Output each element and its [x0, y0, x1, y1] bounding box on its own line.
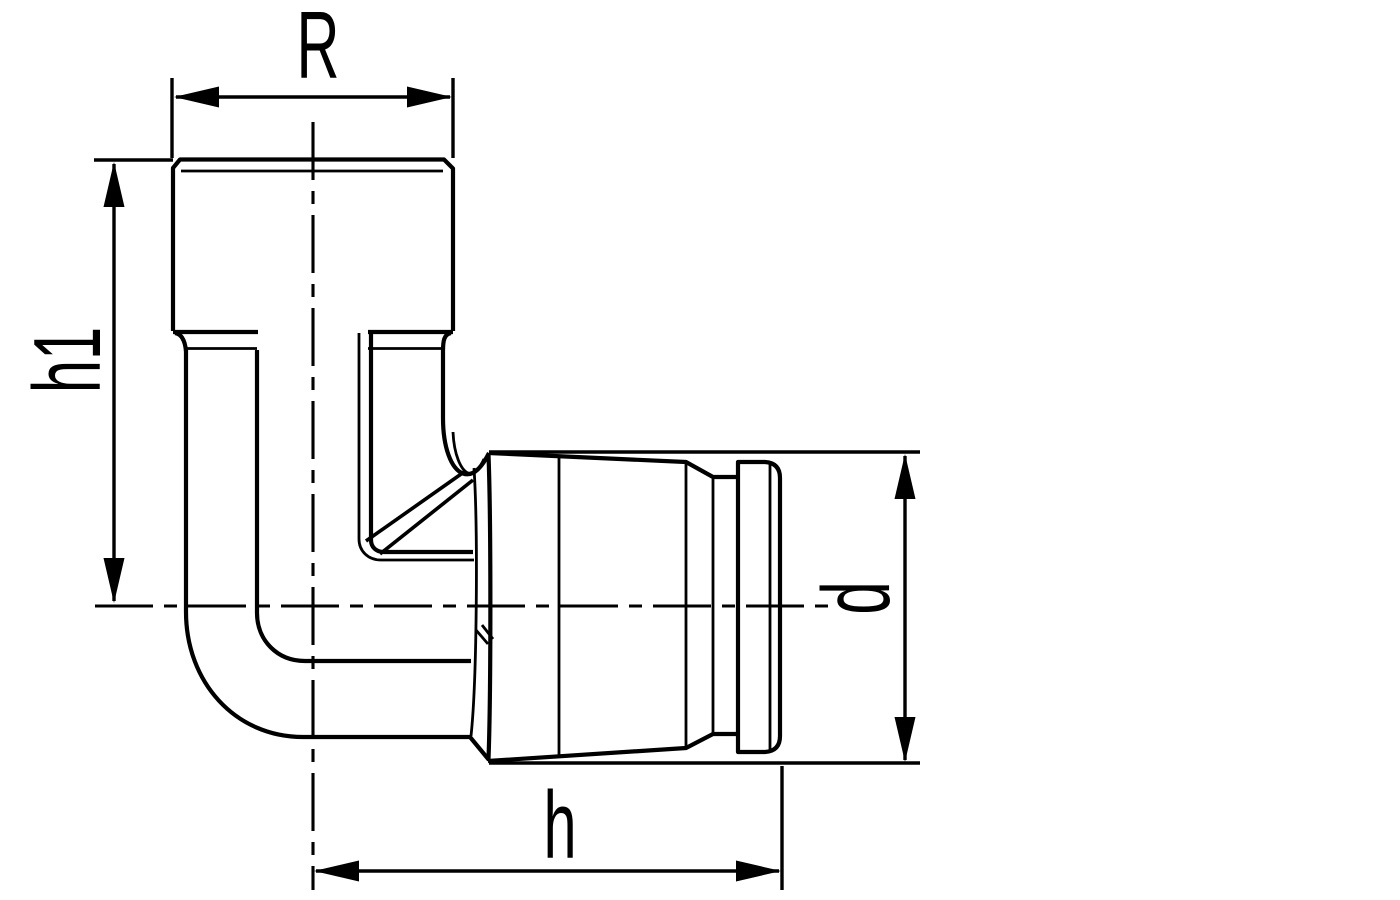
dimension-R-arrow-left: [174, 87, 219, 108]
elbow-fitting-technical-drawing: R h1 d h: [0, 0, 1400, 900]
dimension-label-h: h: [543, 771, 576, 878]
cone-transition-line-2: [380, 480, 473, 554]
dimension-d-arrow-top: [895, 454, 916, 499]
cup-mouth-face-edge: [489, 455, 491, 759]
fitting-body-outline: [173, 160, 780, 762]
dimension-h1-arrow-top: [104, 162, 125, 207]
tube-right-saddle: [443, 351, 489, 474]
dimension-h: h: [314, 766, 782, 890]
cone-transition-line-1: [366, 472, 464, 541]
dimension-R-arrow-right: [407, 87, 452, 108]
centerlines: [95, 122, 835, 890]
cup-bottom-edge: [488, 734, 738, 761]
socket-left-corner-fillet: [175, 333, 186, 351]
dimension-h-arrow-left: [314, 861, 359, 882]
dimension-label-R: R: [297, 0, 340, 98]
saddle-inner-curve: [453, 432, 484, 473]
fitting-detail-lines: [181, 171, 770, 757]
dimension-d-arrow-bottom: [895, 717, 916, 762]
cup-mouth-inner-arc: [471, 468, 476, 736]
dimension-label-h1: h1: [13, 327, 120, 393]
drawing-page: R h1 d h: [0, 0, 1400, 900]
dimension-h1: h1: [13, 160, 173, 603]
socket-right-corner-fillet: [443, 333, 451, 351]
dimension-h1-arrow-bottom: [104, 558, 125, 603]
dimension-h-arrow-right: [736, 861, 781, 882]
cup-top-edge: [489, 453, 738, 477]
dimension-label-d: d: [802, 581, 909, 614]
